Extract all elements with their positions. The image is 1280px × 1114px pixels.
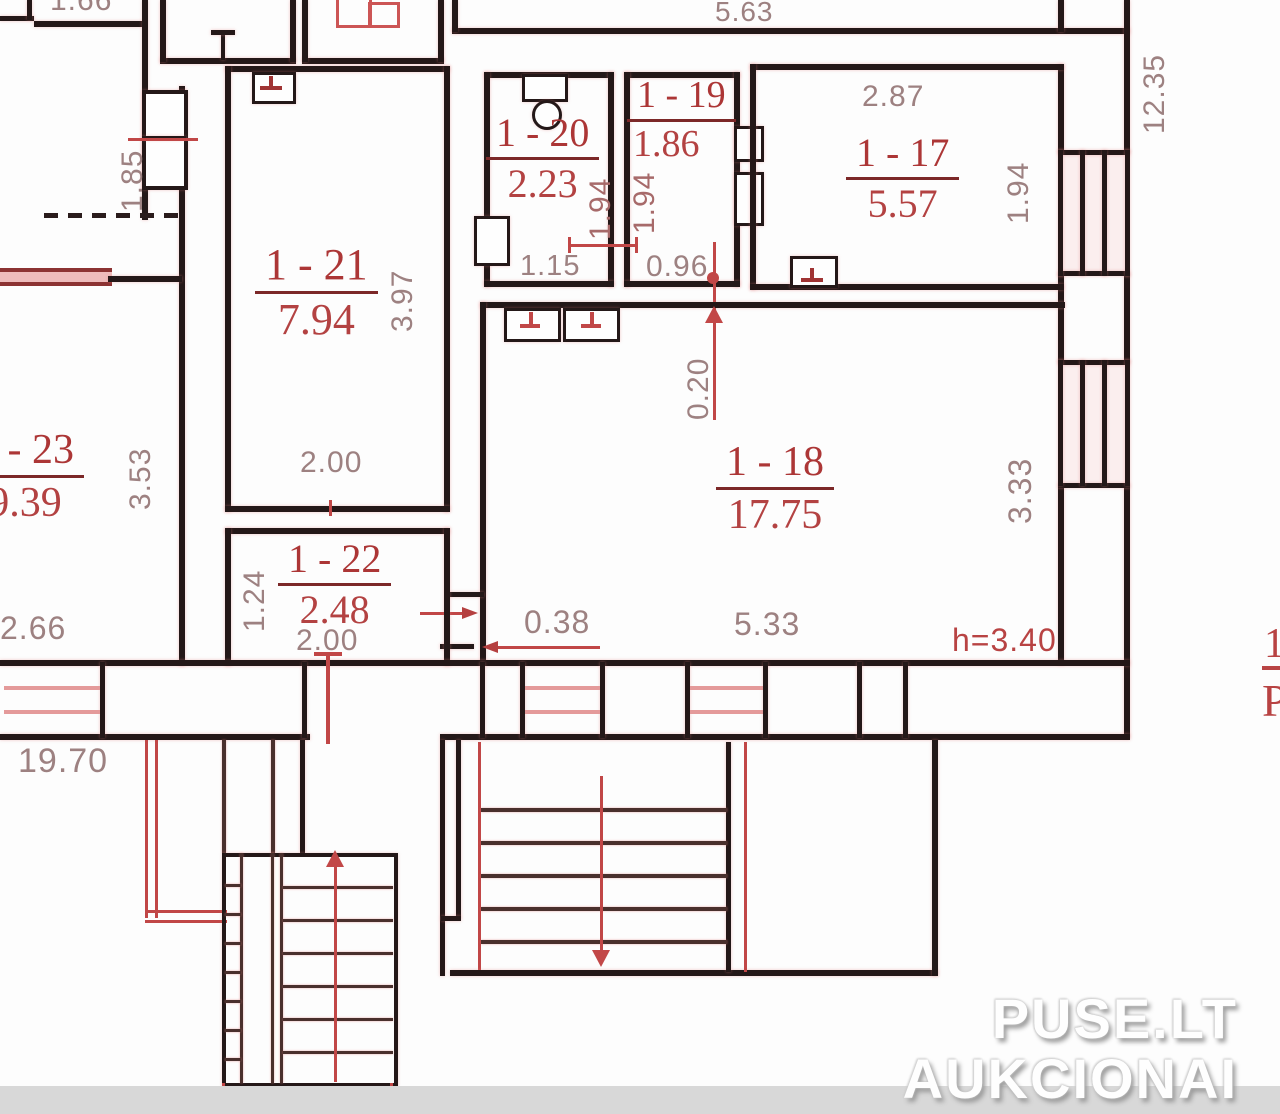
arrow-right-icon [462,607,478,619]
window-frame [1058,360,1130,365]
wall-segment [225,506,450,512]
wall-segment [480,662,485,738]
stair-tread [283,952,393,955]
porch-wall [300,740,305,853]
wall-segment [750,64,756,290]
porch-wall [145,740,148,918]
dim-total-width: 19.70 [18,742,108,781]
wall-segment [302,58,444,64]
porch-wall [478,742,481,972]
wall-segment [438,0,444,62]
wall-segment [448,592,484,597]
window-frame [1058,271,1130,276]
room-id: 1 - 18 [716,440,834,490]
window-frame [1125,360,1130,486]
room-label-1-21: 1 - 21 7.94 [255,242,378,343]
door-line [326,654,330,744]
dimension-tick [329,500,332,516]
dim-corridor: 1.85 [116,138,150,212]
arrow-left-icon [482,641,498,653]
room-area: 9.39 [0,478,84,525]
wall-segment [290,0,296,62]
porch-wall [450,970,938,976]
dim-r22-width: 2.00 [296,624,358,658]
stair-tread [283,1051,393,1054]
stair-tread [283,886,393,889]
wall-segment [440,734,1130,740]
wall-segment [302,0,308,62]
room-id: 1 - 21 [255,242,378,294]
edge-fragment-bar [1262,666,1280,670]
room-area: 5.57 [846,180,959,225]
dim-r20-depth: 1.94 [584,158,618,240]
dim-r19-depth: 1.94 [628,148,662,234]
room-label-1-22: 1 - 22 2.48 [278,538,391,631]
wall-segment [302,662,307,738]
porch-wall [932,740,938,976]
room-area: 2.23 [486,160,599,205]
room-label-1-17: 1 - 17 5.57 [846,132,959,225]
wall-segment [452,28,1130,34]
window-line [525,686,600,690]
window-line [690,686,763,690]
stair-tread [481,841,727,845]
window-frame [1058,483,1130,488]
stair-tread [225,913,241,916]
wall-segment [520,662,525,738]
arrow-up-icon [326,850,344,867]
radiator-icon [474,216,510,266]
wall-segment [1124,0,1130,152]
wall-segment [1058,64,1064,152]
wall-segment [225,66,231,512]
porch-wall [440,740,445,976]
dim-r18-width: 5.33 [734,606,800,643]
edge-fragment-id: 1 [1264,620,1280,668]
porch-wall [145,910,227,913]
room-id: 1 - 20 [486,112,599,160]
stair-tread [283,919,393,922]
floor-plan: 1 - 21 7.94 1 - 20 2.23 1 - 19 1.86 1 - … [0,0,1280,1114]
wall-segment [763,662,768,738]
room-area: 7.94 [255,294,378,343]
window-line [4,686,100,690]
stair-tread [225,942,241,945]
dim-r17-depth: 1.94 [1002,146,1036,224]
dim-r19-width: 0.96 [646,250,708,284]
window-frame [1080,150,1085,276]
arrow-up-icon [705,306,723,323]
wall-segment [27,0,32,20]
dim-r18-offset: 0.20 [682,344,716,420]
porch-wall [145,920,227,923]
edge-fragment-area: P [1262,674,1280,727]
dim-right-height: 12.35 [1138,24,1172,134]
dimension-line [488,646,600,649]
wall-segment [452,0,458,32]
stair-divider [271,853,274,1083]
window-bay [1060,362,1128,484]
wall-segment [100,662,105,738]
window-frame [1102,150,1107,276]
wall-niche [734,172,764,226]
window-line [4,710,100,714]
dashed-wall [44,213,180,218]
stair-tread [481,940,727,944]
dim-ceiling-height: h=3.40 [952,622,1057,659]
room-area: 17.75 [716,490,834,537]
wall-segment [1058,486,1064,665]
toilet-tank-icon [522,74,568,102]
stair-tread [481,808,727,812]
watermark-line1: PUSE.LT [992,986,1238,1051]
wall-segment [1124,486,1130,738]
window-frame [1058,150,1063,276]
wall-segment [160,0,166,62]
room-label-1-18: 1 - 18 17.75 [716,440,834,537]
stair-divider [240,853,243,1083]
room-label-1-23: 1 - 23 9.39 [0,428,84,525]
wall-segment [1124,274,1130,362]
vent-marker [790,256,838,288]
stair-tread [225,884,241,887]
window-frame [1125,150,1130,276]
stair-tread [283,985,393,988]
dim-r22-depth: 1.24 [238,560,272,632]
arrow-down-icon [592,950,610,967]
porch-wall [222,740,226,853]
door-tick [211,30,235,35]
wall-segment [685,662,690,738]
dim-hall-width: 0.38 [524,604,590,641]
watermark-line2: AUKCIONAI [903,1046,1238,1111]
dim-r17-width: 2.87 [862,80,924,114]
stair-direction-line [334,856,337,1082]
wall-segment [225,528,450,534]
window-frame [1102,360,1107,486]
wall-segment [857,662,862,738]
vent-tick [260,86,282,90]
stair-tread [481,874,727,878]
stair-tread [225,1058,241,1061]
stair-tread [481,907,727,911]
dimension-tick [635,237,638,253]
stair-tread [225,1029,241,1032]
dimension-dot [707,272,719,284]
porch-wall [155,740,158,918]
window-frame [1080,360,1085,486]
sink-fixture-icon [368,2,400,28]
dim-r21-depth: 3.97 [386,252,420,332]
stair-tread [225,1000,241,1003]
door-tick [520,324,540,328]
dim-r18-depth: 3.33 [1002,436,1039,524]
window-line [690,710,763,714]
wall-segment [480,302,486,664]
dimension-line [570,244,638,247]
wall-segment [750,64,1064,70]
room-id: 1 - 17 [846,132,959,180]
stair-tread [225,971,241,974]
wall-segment [1058,0,1064,32]
porch-wall [456,740,461,918]
dim-r20-width: 1.15 [520,250,580,283]
wall-segment [600,662,605,738]
room-id: 1 - 19 [627,76,736,122]
room-label-1-20: 1 - 20 2.23 [486,112,599,205]
dim-fragment-top-left: 1.66 [50,0,112,18]
stair-divider [744,742,747,972]
balcony-door [0,268,112,286]
door-tick [581,324,601,328]
window-line [525,710,600,714]
porch-wall [271,740,275,853]
wall-segment [225,528,231,666]
stair-tread [283,1018,393,1021]
stair-direction-line [600,776,603,962]
wall-segment [444,528,450,666]
stair-divider [726,742,731,972]
dim-r23-width: 2.66 [0,610,66,647]
wall-segment [903,662,908,738]
porch-wall [441,916,461,921]
window-frame [1058,360,1063,486]
wall-segment [444,66,450,512]
dim-top-width: 5.63 [715,0,774,28]
wall-segment [34,21,146,27]
wall-niche [734,126,764,162]
vent-tick [801,278,823,282]
door-tick [221,34,225,60]
wall-segment [160,58,296,64]
window-bay [1060,152,1128,272]
dim-r21-width: 2.00 [300,446,362,480]
dim-r23-depth: 3.53 [124,428,158,510]
room-id: 1 - 23 [0,428,84,478]
window-frame [1058,150,1130,155]
room-id: 1 - 22 [278,538,391,586]
wall-segment [108,276,182,282]
wall-segment [0,660,1130,666]
sink-fixture-icon [336,0,372,28]
